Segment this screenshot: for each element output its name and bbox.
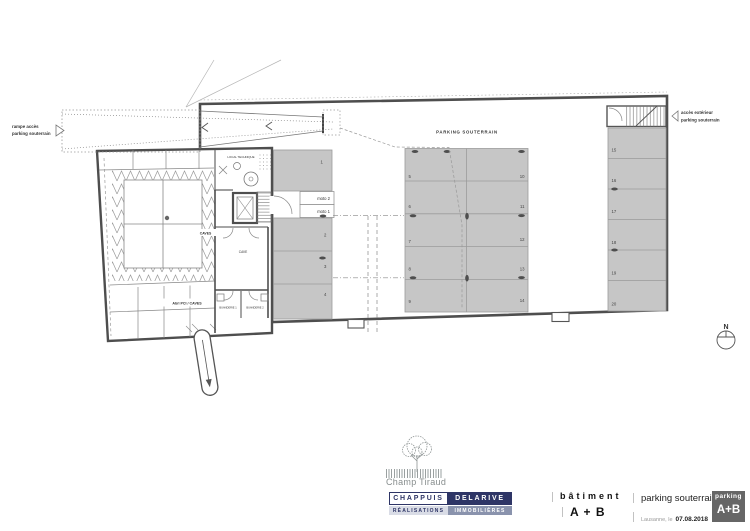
light-well bbox=[552, 313, 569, 322]
moto2-label: moto 2 bbox=[317, 196, 330, 201]
moto1-label: moto 1 bbox=[317, 209, 330, 214]
company-logo-row2: RÉALISATIONS IMMOBILIÈRES bbox=[389, 506, 515, 515]
room-label-caves: CAVES bbox=[200, 232, 212, 236]
wall-opening bbox=[270, 196, 275, 214]
stall-13: 13 bbox=[520, 267, 525, 272]
room-label-buanderie1: BUANDERIE 1 bbox=[219, 306, 237, 310]
document-title: parking souterrain bbox=[641, 493, 717, 504]
divider bbox=[552, 492, 553, 502]
badge-top-label: parking bbox=[712, 491, 745, 502]
compass-label: N bbox=[723, 324, 728, 331]
company-logo-row1: CHAPPUIS DELARIVE bbox=[389, 492, 515, 505]
place-label: Lausanne, le bbox=[641, 517, 673, 523]
building-block: bâtiment A + B bbox=[552, 491, 622, 519]
divider bbox=[562, 507, 563, 517]
building-value: A + B bbox=[570, 505, 606, 519]
drawing-sheet: rampe accès parking souterrain accès ext… bbox=[0, 0, 750, 531]
stall-15: 15 bbox=[612, 148, 617, 153]
company-name-left: CHAPPUIS bbox=[389, 492, 448, 505]
right-stall-strip bbox=[608, 128, 666, 311]
room-label-buanderie2: BUANDERIE 2 bbox=[246, 306, 264, 310]
area-title: PARKING SOUTERRAIN bbox=[436, 130, 498, 135]
date-value: 07.08.2018 bbox=[676, 516, 709, 523]
building-stair bbox=[257, 192, 271, 222]
floor-plan: rampe accès parking souterrain accès ext… bbox=[0, 0, 750, 531]
stall-11: 11 bbox=[520, 204, 525, 209]
brand-name: Champ Tiraud bbox=[386, 477, 446, 487]
stall-12: 12 bbox=[520, 237, 525, 242]
stall-20: 20 bbox=[612, 302, 617, 307]
company-tagline-right: IMMOBILIÈRES bbox=[448, 506, 512, 515]
ramp-arrow-icon bbox=[56, 125, 64, 136]
ramp-label-line1: rampe accès bbox=[12, 124, 39, 129]
exterior-access-arrow-icon bbox=[672, 111, 678, 121]
exterior-ramp bbox=[193, 329, 219, 397]
stall-19: 19 bbox=[612, 271, 617, 276]
building-label: bâtiment bbox=[560, 491, 622, 501]
stall-18: 18 bbox=[612, 240, 617, 245]
exterior-access-line1: accès extérieur bbox=[681, 110, 713, 115]
ramp-label-line2: parking souterrain bbox=[12, 131, 51, 136]
vestibule-floor bbox=[258, 152, 271, 172]
light-well bbox=[348, 320, 364, 329]
elevator bbox=[233, 193, 257, 223]
center-stall-block bbox=[405, 149, 528, 313]
room-label-local-technique: LOCAL TECHNIQUE bbox=[227, 155, 254, 159]
company-tagline-left: RÉALISATIONS bbox=[389, 506, 448, 515]
company-name-right: DELARIVE bbox=[448, 492, 512, 505]
divider bbox=[633, 512, 634, 522]
company-logo: CHAPPUIS DELARIVE RÉALISATIONS IMMOBILIÈ… bbox=[389, 492, 515, 515]
room-label-cave: CAVE bbox=[239, 250, 247, 254]
brand-tree-icon bbox=[385, 433, 449, 473]
stall-14: 14 bbox=[520, 298, 525, 303]
document-title-block: parking souterrain Lausanne, le07.08.201… bbox=[633, 493, 717, 526]
exterior-access-line2: parking souterrain bbox=[681, 118, 720, 123]
stall-17: 17 bbox=[612, 209, 617, 214]
exterior-stair bbox=[607, 106, 666, 127]
divider bbox=[633, 493, 634, 503]
parking-badge: parking A+B bbox=[712, 491, 745, 522]
central-cave-grid bbox=[124, 180, 202, 268]
stall-16: 16 bbox=[612, 178, 617, 183]
stall-10: 10 bbox=[520, 174, 525, 179]
north-compass bbox=[717, 331, 735, 349]
room-label-abri: Abri PCI / CAVES bbox=[172, 302, 202, 306]
badge-value: A+B bbox=[712, 502, 745, 518]
column-dot bbox=[165, 216, 169, 220]
